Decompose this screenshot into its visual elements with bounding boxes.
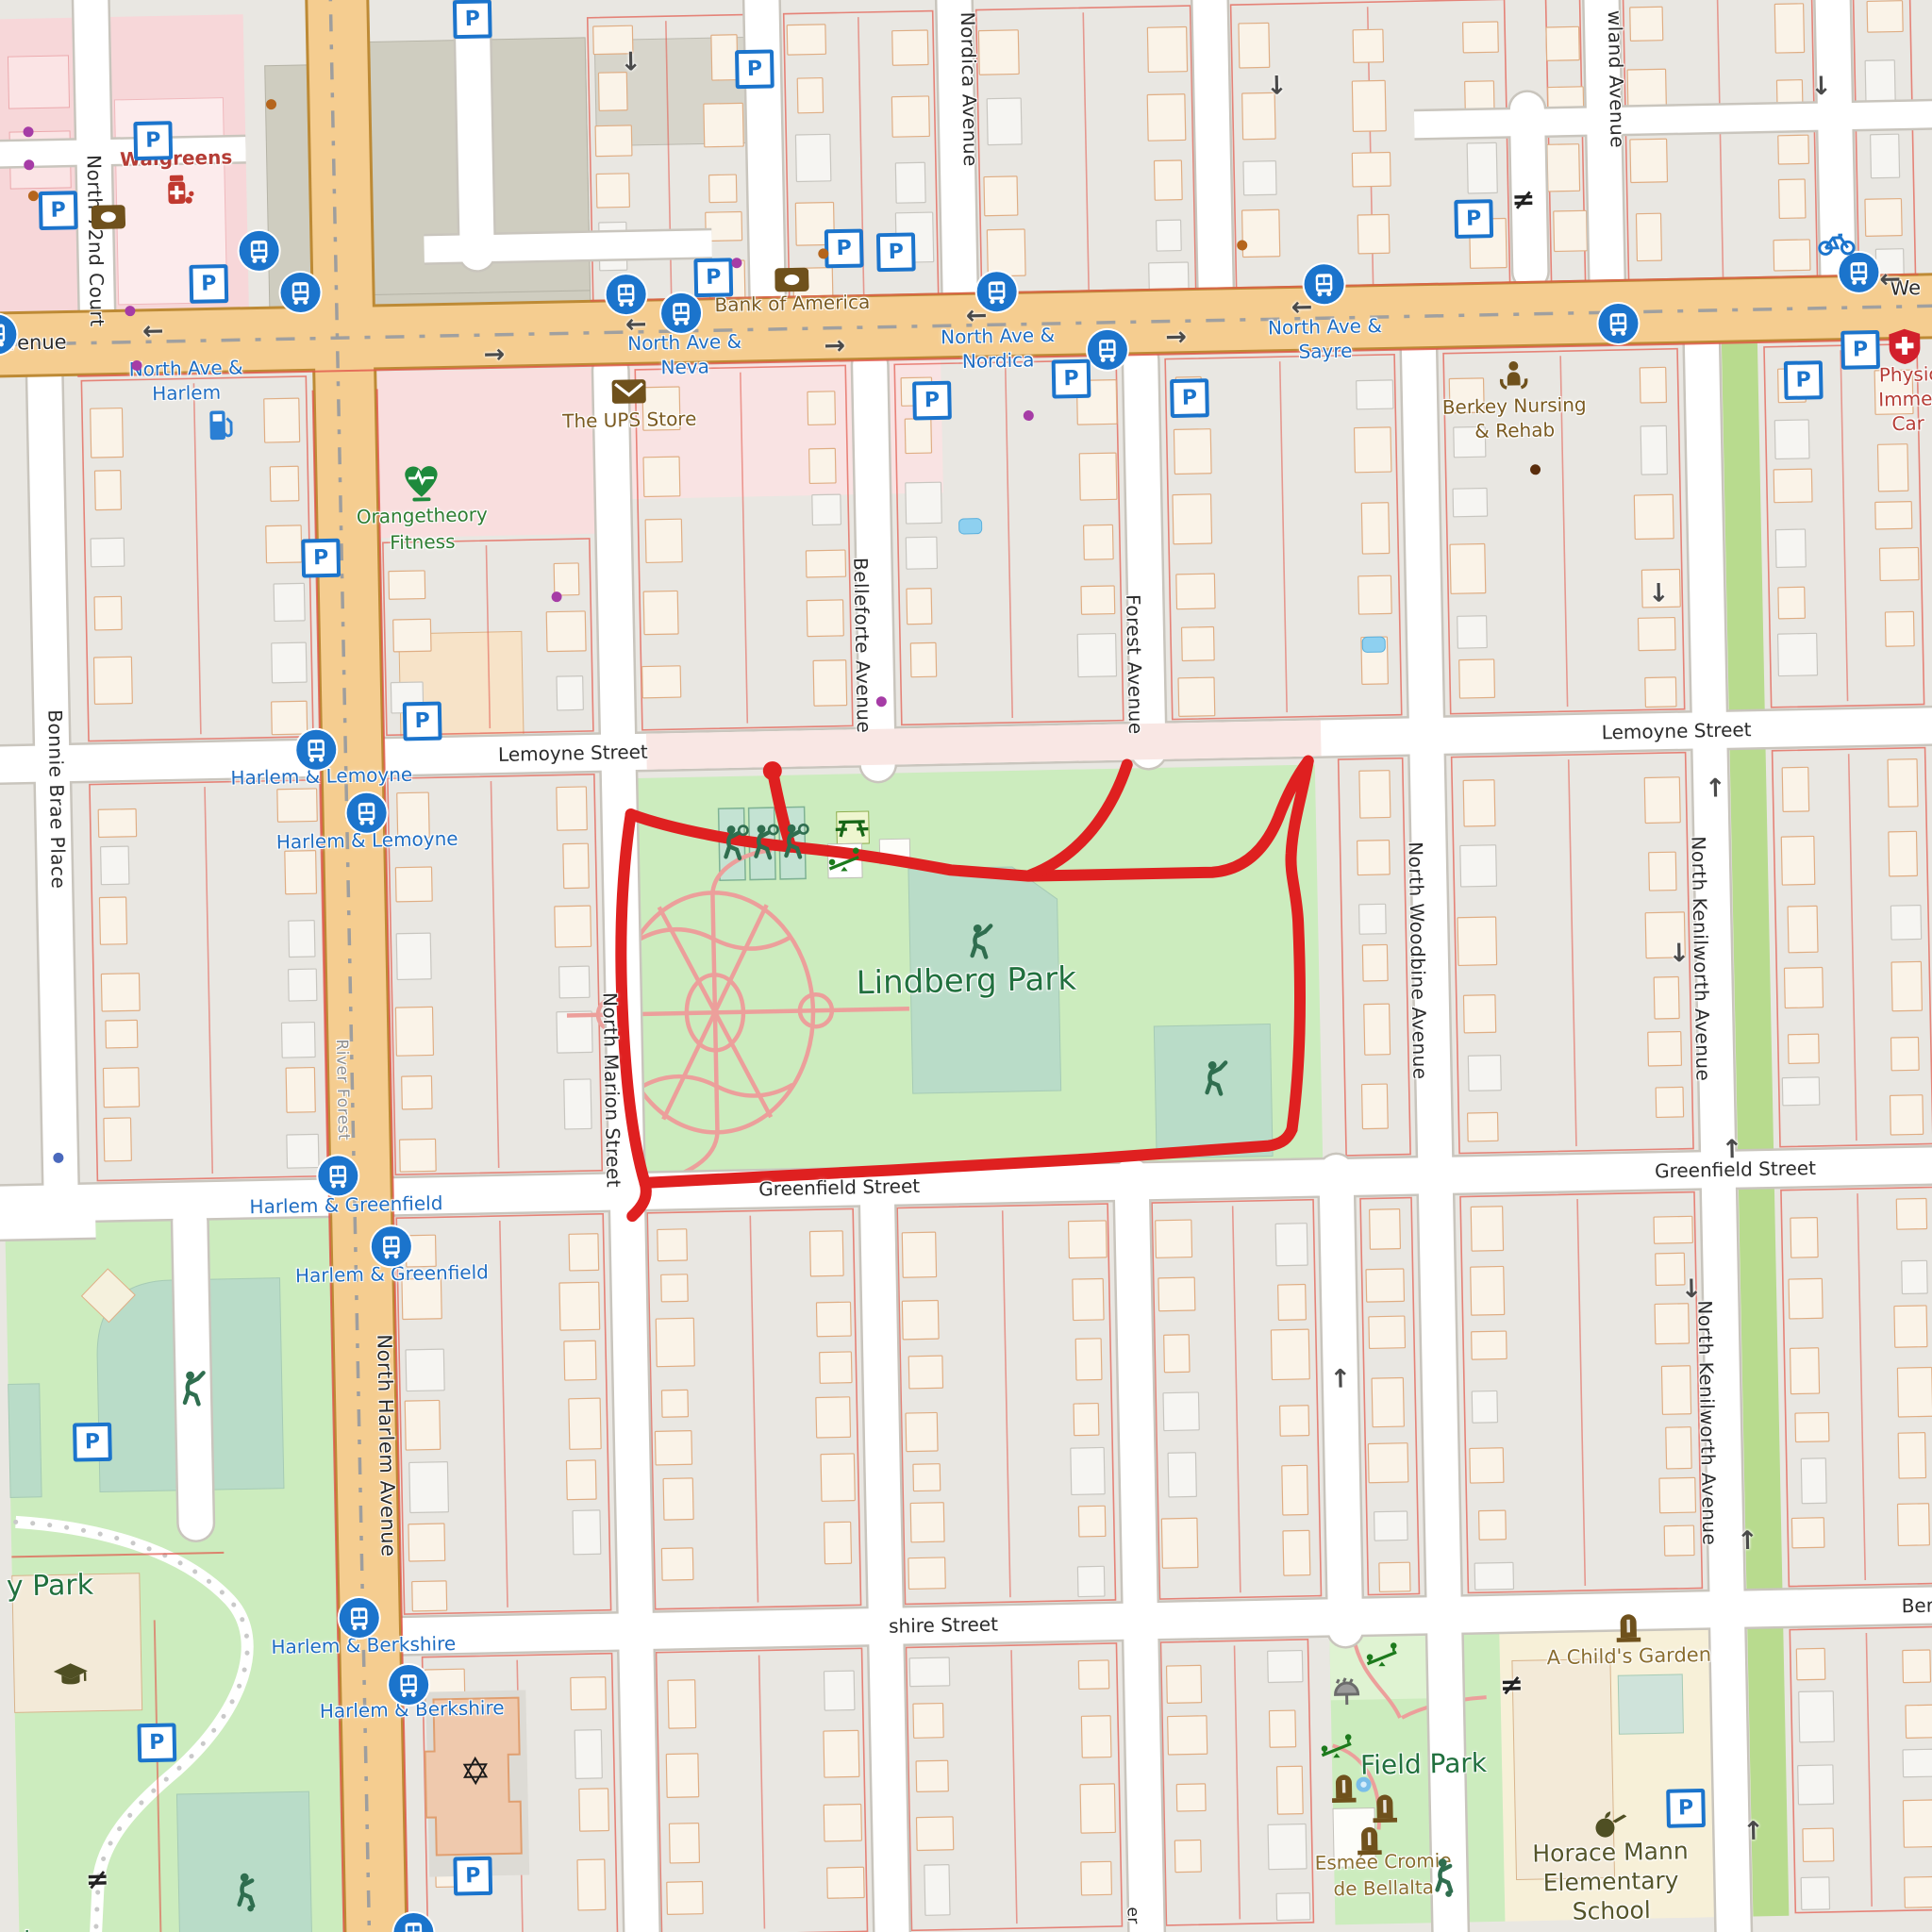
parking-icon: P [453, 0, 492, 39]
parking-icon: P [403, 702, 442, 741]
oneway-arrow-icon: ↑ [1721, 1135, 1742, 1164]
money-icon [92, 205, 126, 230]
mail-icon [611, 379, 646, 405]
bus-stop-label: North Ave & [1268, 316, 1382, 337]
playground-icon [824, 846, 863, 875]
bus-stop-label: Sayre [1298, 341, 1352, 361]
umbrella-icon [1331, 1677, 1362, 1708]
street-label: k [24, 1928, 37, 1932]
poi-label: y Park [7, 1572, 94, 1602]
bus-stop-label: Harlem [152, 383, 221, 403]
poi-label: & Rehab [1474, 420, 1555, 441]
parking-icon: P [1840, 330, 1880, 370]
synagogue-icon: ✡ [459, 1753, 491, 1791]
bike-icon [1818, 231, 1857, 257]
map-rotated-layer: WalgreensNorth 72nd CourtAvenueWeNordica… [0, 0, 1932, 1932]
bus-stop-label: Harlem & Greenfield [249, 1193, 442, 1216]
parking-icon: P [876, 232, 916, 272]
oneway-arrow-icon: ↑ [1329, 1364, 1351, 1393]
oneway-arrow-icon: ↓ [620, 47, 641, 76]
fountain-icon [1356, 1777, 1371, 1792]
street-label: Belleforte Avenue [851, 558, 874, 734]
street-label: Nordica Avenue [958, 11, 980, 167]
schoolic-icon [1592, 1806, 1627, 1840]
street-label: Lemoyne Street [1602, 720, 1752, 741]
street-label: Forest Avenue [1124, 594, 1145, 735]
poi-label: A Child's Garden [1546, 1645, 1711, 1668]
oneway-arrow-icon: ↑ [1705, 774, 1726, 803]
poi-label: Horace Mann [1532, 1839, 1689, 1865]
street-label: River Forest [333, 1039, 351, 1141]
street-label: Berks [1901, 1595, 1932, 1615]
parking-icon: P [39, 191, 78, 230]
bus-stop-label: Harlem & Berkshire [271, 1634, 456, 1657]
oneway-arrow-icon: ↓ [1266, 71, 1288, 100]
oneway-arrow-icon: ↓ [1668, 939, 1690, 968]
poi-label: The UPS Store [562, 409, 697, 431]
memorial-icon [1331, 1771, 1357, 1804]
fuel-icon [206, 408, 235, 442]
street-label: North Kenilworth Avenue [1689, 836, 1712, 1081]
street-label: Bonnie Brae Place [45, 709, 68, 889]
parking-icon: P [453, 1857, 492, 1896]
street-label: shire Street [889, 1614, 998, 1635]
bus-stop-label: North Ave & [128, 358, 242, 378]
poi-label: Fitness [390, 532, 456, 552]
level-crossing-icon: ≠ [85, 1863, 109, 1896]
bus-stop-label: Nordica [962, 350, 1035, 371]
poi-label: Physic [1879, 364, 1932, 384]
poi-label: Lindberg Park [856, 963, 1076, 1000]
oneway-arrow-icon: → [483, 340, 505, 369]
parking-icon: P [301, 539, 341, 578]
pharmacy-icon [159, 173, 194, 208]
oneway-arrow-icon: → [824, 331, 845, 360]
parking-icon: P [693, 258, 733, 297]
oneway-arrow-icon: → [1165, 323, 1187, 352]
tennis-icon [771, 822, 813, 864]
oneway-arrow-icon: ↓ [1810, 72, 1832, 101]
parking-icon: P [137, 1723, 176, 1762]
street-label: Lemoyne Street [498, 742, 648, 764]
memorial-icon [1616, 1610, 1641, 1643]
parking-icon: P [1666, 1789, 1706, 1828]
parking-icon: P [1170, 378, 1209, 418]
street-label: North 72nd Court [85, 155, 108, 327]
baseball-icon [169, 1369, 211, 1411]
poi-label: Immed [1878, 389, 1932, 408]
oneway-arrow-icon: ↓ [1680, 1274, 1702, 1304]
seesaw-icon [1317, 1733, 1356, 1762]
poi-label: Car [1891, 413, 1924, 433]
oneway-arrow-icon: ← [966, 301, 988, 330]
soccer-icon [1422, 1857, 1464, 1899]
poi-label: Bank of America [714, 292, 870, 314]
memorial-icon [1373, 1790, 1398, 1824]
street-label: North Woodbine Avenue [1406, 841, 1429, 1080]
picnic-icon [834, 813, 871, 841]
street-label: North Harlem Avenue [374, 1334, 398, 1557]
oneway-arrow-icon: ← [142, 316, 164, 345]
firstaid-icon [1886, 327, 1924, 366]
poi-label: Orangetheory [357, 505, 488, 526]
poi-label: Berkey Nursing [1442, 395, 1587, 417]
oneway-arrow-icon: ↑ [1742, 1817, 1764, 1846]
parking-icon: P [1454, 199, 1493, 239]
street-label: Greenfield Street [758, 1176, 920, 1198]
parking-icon: P [1784, 360, 1824, 400]
oneway-arrow-icon: ← [1291, 292, 1312, 322]
oneway-arrow-icon: ↓ [1648, 578, 1670, 608]
street-label: er [1124, 1907, 1141, 1924]
poi-label: de Bellalta [1333, 1877, 1434, 1898]
money-icon [774, 267, 809, 292]
poi-label: School [1572, 1898, 1650, 1924]
baseball-icon [1191, 1058, 1234, 1101]
baseball-icon [957, 922, 999, 964]
bus-stop-label: Neva [660, 357, 709, 376]
bus-stop-label: North Ave & [941, 325, 1055, 346]
parking-icon: P [133, 121, 173, 160]
street-label: North Marion Street [600, 992, 623, 1189]
parking-icon: P [735, 49, 774, 89]
parking-icon: P [189, 264, 228, 304]
poi-label: Elementary [1542, 1869, 1678, 1895]
poi-label: Field Park [1360, 1750, 1488, 1779]
level-crossing-icon: ≠ [1500, 1669, 1524, 1702]
oneway-arrow-icon: ← [1879, 264, 1901, 293]
map-canvas[interactable]: WalgreensNorth 72nd CourtAvenueWeNordica… [0, 0, 1932, 1932]
seesaw-icon [1362, 1641, 1401, 1671]
nursing-icon [1495, 358, 1532, 394]
parking-icon: P [912, 381, 952, 421]
parking-icon: P [824, 229, 864, 269]
gradcap-icon [52, 1661, 91, 1690]
street-label: wland Avenue [1606, 10, 1627, 149]
parking-icon: P [73, 1423, 112, 1462]
oneway-arrow-icon: ↑ [1737, 1526, 1758, 1556]
fitness-icon [401, 462, 441, 503]
memorial-icon [1357, 1823, 1382, 1856]
parking-icon: P [1052, 359, 1091, 399]
level-crossing-icon: ≠ [1511, 183, 1536, 216]
soccer-icon [224, 1871, 266, 1913]
street-label: North Kenilworth Avenue [1695, 1300, 1719, 1545]
oneway-arrow-icon: ← [625, 309, 647, 339]
